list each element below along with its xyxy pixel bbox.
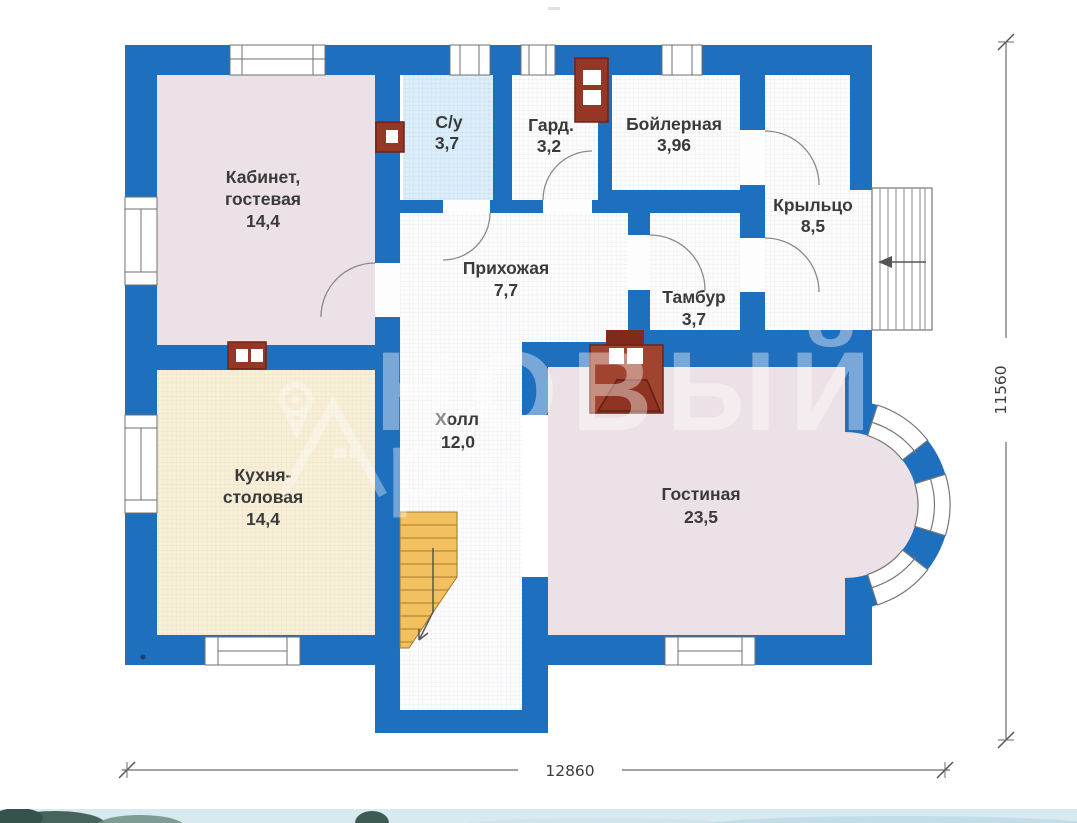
bottom-photo-strip [0,808,1077,823]
label-kabinet-area: 14,4 [246,211,280,231]
label-kabinet-2: гостевая [225,189,301,209]
window-boiler-top [662,45,702,75]
label-boiler-area: 3,96 [657,135,691,155]
label-kitchen-1: Кухня- [235,465,292,485]
watermark-text-sub: рес [387,413,549,519]
floor-plan-drawing: Кабинет, гостевая 14,4 С/у 3,7 Гард. 3,2… [0,0,1077,823]
label-kitchen-area: 14,4 [246,509,280,529]
room-kabinet-floor [157,75,375,345]
porch-staircase [872,188,932,330]
wall-hall-bump-bottom [375,710,548,733]
wall-su-right [493,75,512,200]
opening-tambur [628,235,650,290]
label-hallway-area: 7,7 [494,280,518,300]
stray-dot [141,655,146,660]
label-porch-area: 8,5 [801,216,826,236]
opening-entry [740,238,765,292]
bay-window-2 [915,474,950,535]
label-living-area: 23,5 [684,507,718,527]
label-tambur: Тамбур [662,287,725,307]
wall-living-left-lower [522,577,548,733]
label-gard: Гард. [528,115,574,135]
label-boiler: Бойлерная [626,114,722,134]
opening-gard [543,200,592,213]
label-su-area: 3,7 [435,133,459,153]
wall-bay-bottom-connector [845,605,872,665]
label-kitchen-2: столовая [223,487,303,507]
dimension-width-value: 12860 [545,762,594,780]
window-kabinet-top [230,45,325,75]
label-living: Гостиная [661,484,740,504]
window-su-top [450,45,490,75]
floor-plan-canvas: Кабинет, гостевая 14,4 С/у 3,7 Гард. 3,2… [0,0,1077,823]
room-hallway-floor [400,213,628,345]
label-porch: Крыльцо [773,195,853,215]
label-tambur-area: 3,7 [682,309,706,329]
label-hallway: Прихожая [463,258,549,278]
opening-kabinet [375,263,400,317]
wall-porch-right [850,45,872,190]
label-gard-area: 3,2 [537,136,562,156]
label-su: С/у [435,112,463,132]
window-gard-top [521,45,555,75]
opening-su [443,200,490,213]
dimension-height-value: 11560 [992,365,1010,414]
label-kabinet-1: Кабинет, [226,167,300,187]
opening-boiler-porch [740,130,765,185]
stray-mark [548,7,560,10]
wall-porch-left [740,45,765,352]
